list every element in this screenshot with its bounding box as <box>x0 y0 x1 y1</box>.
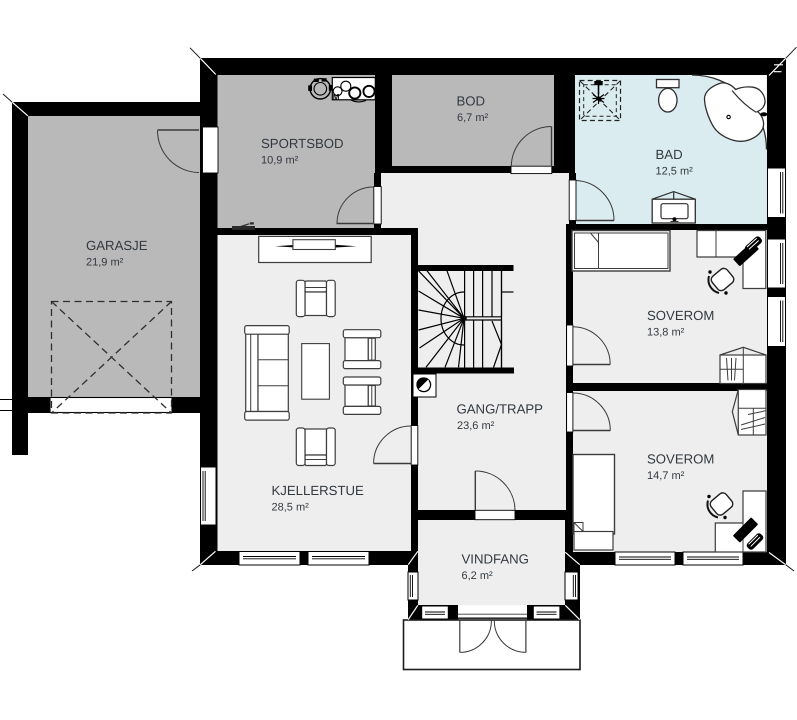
svg-text:SPORTSBOD: SPORTSBOD <box>261 136 344 151</box>
svg-text:SOVEROM: SOVEROM <box>647 452 714 467</box>
svg-text:6,7 m²: 6,7 m² <box>457 112 489 124</box>
svg-text:12,5 m²: 12,5 m² <box>656 166 694 178</box>
svg-text:GANG/TRAPP: GANG/TRAPP <box>457 402 544 417</box>
svg-text:23,6 m²: 23,6 m² <box>457 420 495 432</box>
svg-text:SOVEROM: SOVEROM <box>647 308 714 323</box>
svg-text:GARASJE: GARASJE <box>86 238 148 253</box>
svg-text:21,9 m²: 21,9 m² <box>86 257 124 269</box>
svg-text:10,9 m²: 10,9 m² <box>261 155 299 167</box>
svg-text:14,7 m²: 14,7 m² <box>647 470 685 482</box>
svg-text:M: M <box>333 93 340 102</box>
svg-text:VINDFANG: VINDFANG <box>462 552 529 567</box>
svg-text:28,5 m²: 28,5 m² <box>272 502 310 514</box>
svg-text:13,8 m²: 13,8 m² <box>647 327 685 339</box>
svg-text:BOD: BOD <box>457 94 486 109</box>
svg-text:KJELLERSTUE: KJELLERSTUE <box>272 483 365 498</box>
svg-text:6,2 m²: 6,2 m² <box>462 570 494 582</box>
svg-text:BAD: BAD <box>656 147 683 162</box>
